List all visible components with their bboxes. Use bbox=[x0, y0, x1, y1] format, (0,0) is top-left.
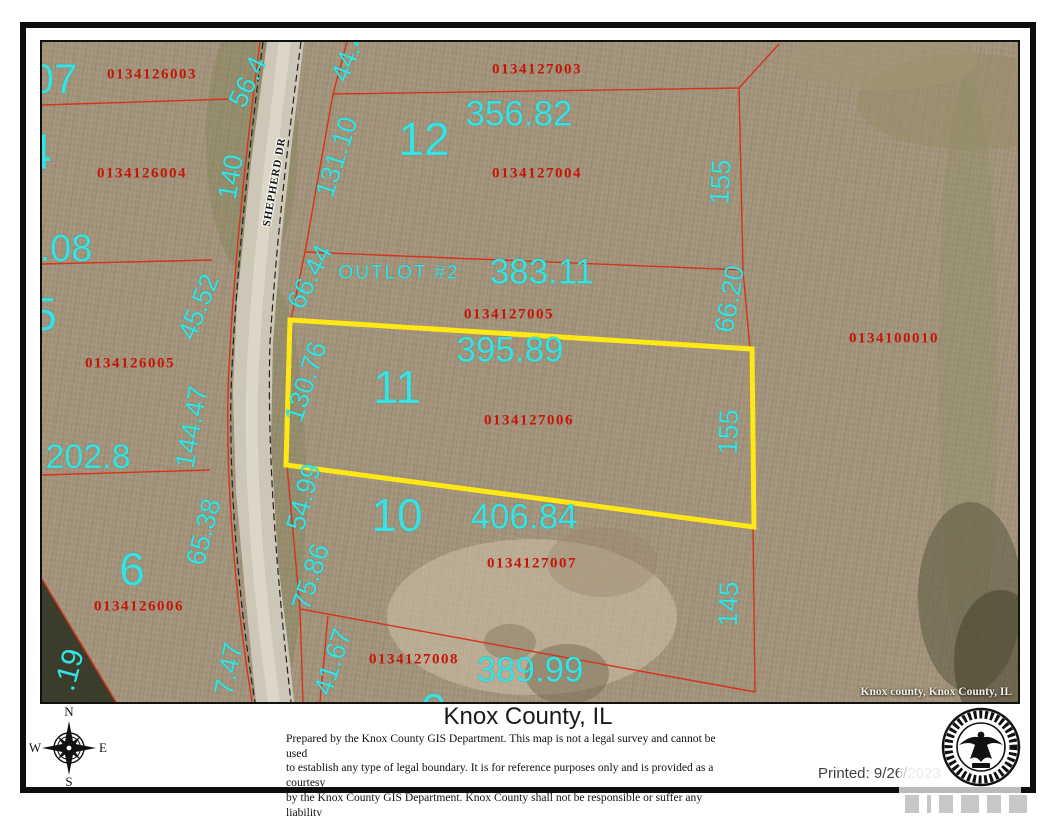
edge-label-08: .08 bbox=[40, 230, 92, 268]
edge-label-07: 07 bbox=[40, 58, 77, 100]
disclaimer-text: Prepared by the Knox County GIS Departme… bbox=[286, 732, 730, 816]
map-watermark: Knox county, Knox County, IL bbox=[861, 686, 1012, 698]
dimension-202-8: 202.8 bbox=[45, 440, 130, 474]
road-label-shepherd-dr: SHEPHERD DR bbox=[262, 137, 288, 228]
parcel-id-0134127005: 0134127005 bbox=[464, 308, 554, 323]
dimension-155-mid: 155 bbox=[715, 409, 744, 455]
disclaimer-line-2: to establish any type of legal boundary.… bbox=[286, 761, 730, 790]
lot-number-10: 10 bbox=[371, 492, 422, 538]
disclaimer-line-3: by the Knox County GIS Department. Knox … bbox=[286, 791, 730, 816]
parcel-id-0134126005: 0134126005 bbox=[85, 357, 175, 372]
lot-number-12: 12 bbox=[398, 116, 449, 162]
dimension-155-top: 155 bbox=[706, 159, 735, 205]
dimension-54-99: 54.99 bbox=[282, 461, 326, 533]
parcel-id-0134127004: 0134127004 bbox=[492, 167, 582, 182]
knox-county-seal bbox=[941, 707, 1021, 787]
edge-label-5: 5 bbox=[40, 291, 57, 337]
dimension-144-47: 144.47 bbox=[172, 384, 213, 470]
parcel-id-0134126006: 0134126006 bbox=[94, 600, 184, 615]
lot-number-11: 11 bbox=[373, 364, 421, 410]
parcel-id-0134100010: 0134100010 bbox=[849, 332, 939, 347]
dimension-140: 140 bbox=[214, 152, 248, 201]
printed-date-prefix: Printed: 9/26/ bbox=[818, 765, 907, 782]
parcel-id-0134127008: 0134127008 bbox=[369, 653, 459, 668]
aerial-parcel-map: 0134126003013412700301341260040134127004… bbox=[40, 40, 1020, 704]
dimension-389-99: 389.99 bbox=[476, 653, 583, 688]
dimension-383-11: 383.11 bbox=[490, 255, 594, 290]
dimension-130-76: 130.76 bbox=[280, 339, 331, 426]
dimension-44-4: 44.4 bbox=[327, 40, 372, 85]
lot-number-6: 6 bbox=[119, 546, 145, 592]
compass-s-label: S bbox=[65, 774, 72, 787]
dimension-356-82: 356.82 bbox=[465, 97, 572, 132]
parcel-id-0134127007: 0134127007 bbox=[487, 557, 577, 572]
dimension-131-10: 131.10 bbox=[311, 114, 362, 201]
map-labels-layer: 0134126003013412700301341260040134127004… bbox=[42, 42, 1018, 702]
dimension-66-20: 66.20 bbox=[711, 263, 749, 334]
parcel-id-0134127006: 0134127006 bbox=[484, 414, 574, 429]
dimension-395-89: 395.89 bbox=[456, 333, 563, 368]
dimension-41-67: 41.67 bbox=[310, 626, 357, 699]
outlot-2-label: OUTLOT #2 bbox=[338, 264, 459, 283]
compass-n-label: N bbox=[64, 704, 74, 719]
parcel-id-0134127003: 0134127003 bbox=[492, 63, 582, 78]
dimension-7-47: 7.47 bbox=[210, 640, 247, 697]
dimension-145: 145 bbox=[715, 581, 744, 627]
disclaimer-line-1: Prepared by the Knox County GIS Departme… bbox=[286, 732, 730, 761]
printed-map-page: 0134126003013412700301341260040134127004… bbox=[0, 0, 1056, 816]
parcel-id-0134126004: 0134126004 bbox=[97, 167, 187, 182]
dimension-56-4: 56.4 bbox=[224, 52, 271, 111]
dimension-66-44: 66.44 bbox=[283, 241, 338, 313]
dimension-45-52: 45.52 bbox=[174, 271, 224, 344]
edge-label-4: 4 bbox=[40, 127, 52, 177]
parcel-id-0134126003: 0134126003 bbox=[107, 68, 197, 83]
compass-w-label: W bbox=[29, 740, 42, 755]
compass-rose: N E S W bbox=[27, 703, 111, 787]
compass-star bbox=[42, 721, 96, 775]
lot-number-9-partial: 9 bbox=[421, 687, 447, 704]
edge-label-19: .19 bbox=[50, 646, 90, 694]
compass-e-label: E bbox=[99, 740, 107, 755]
cropped-watermark-glyphs bbox=[905, 789, 1035, 813]
dimension-75-86: 75.86 bbox=[288, 541, 335, 614]
dimension-65-38: 65.38 bbox=[182, 496, 226, 568]
page-title: Knox County, IL bbox=[40, 703, 1016, 731]
dimension-406-84: 406.84 bbox=[470, 500, 577, 535]
